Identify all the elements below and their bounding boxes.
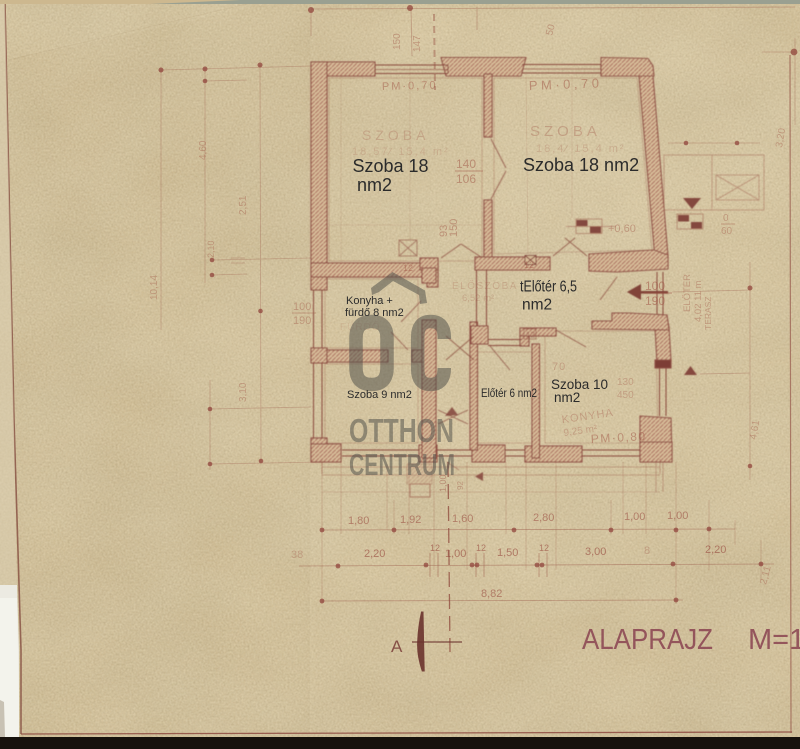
- svg-text:1,00: 1,00: [445, 548, 466, 560]
- svg-text:1,60: 1,60: [452, 513, 473, 525]
- svg-text:2,10: 2,10: [206, 240, 216, 258]
- svg-text:450: 450: [617, 390, 634, 401]
- svg-text:0: 0: [723, 213, 729, 224]
- svg-text:150: 150: [392, 33, 403, 50]
- svg-text:3,10: 3,10: [238, 382, 249, 402]
- svg-text:Előtér 6 nm2: Előtér 6 nm2: [481, 388, 537, 400]
- svg-text:1,00: 1,00: [624, 511, 645, 523]
- svg-text:4,60: 4,60: [198, 140, 209, 160]
- svg-text:93: 93: [438, 225, 450, 237]
- svg-text:nm2: nm2: [554, 390, 580, 405]
- svg-text:130: 130: [617, 377, 634, 388]
- svg-text:SZOBA: SZOBA: [362, 127, 429, 143]
- svg-text:Konyha +: Konyha +: [346, 295, 393, 307]
- svg-text:1,92: 1,92: [400, 514, 421, 526]
- svg-text:ALAPRAJZ: ALAPRAJZ: [582, 624, 713, 656]
- svg-text:70: 70: [552, 361, 566, 373]
- svg-text:190: 190: [645, 294, 665, 308]
- svg-text:Szoba 9 nm2: Szoba 9 nm2: [347, 389, 412, 401]
- svg-text:1,80: 1,80: [348, 515, 369, 527]
- svg-text:M=1: M=1: [748, 624, 800, 656]
- svg-text:fürdő 8 nm2: fürdő 8 nm2: [345, 307, 404, 319]
- svg-text:12: 12: [539, 543, 549, 553]
- svg-text:12: 12: [524, 260, 534, 270]
- svg-text:38: 38: [291, 549, 303, 561]
- svg-text:147: 147: [412, 35, 423, 52]
- svg-text:12: 12: [430, 543, 440, 553]
- svg-text:PM·0,80: PM·0,80: [590, 429, 647, 446]
- svg-text:10,14: 10,14: [149, 275, 160, 300]
- svg-text:PM·0,70: PM·0,70: [529, 75, 603, 93]
- svg-text:nm2: nm2: [357, 175, 392, 195]
- svg-text:2,20: 2,20: [364, 548, 385, 560]
- svg-text:2,80: 2,80: [533, 512, 554, 524]
- svg-text:CENTRUM: CENTRUM: [349, 447, 455, 482]
- svg-text:2,20: 2,20: [705, 544, 726, 556]
- svg-text:tElőtér 6,5: tElőtér 6,5: [520, 279, 577, 296]
- svg-text:12: 12: [476, 543, 486, 553]
- svg-text:TERASZ: TERASZ: [703, 296, 713, 330]
- svg-text:190: 190: [293, 315, 311, 327]
- svg-text:3,00: 3,00: [585, 546, 606, 558]
- svg-text:100: 100: [645, 279, 665, 293]
- svg-text:OTTHON: OTTHON: [349, 412, 454, 449]
- svg-text:18,4⁄ 15,4 m²: 18,4⁄ 15,4 m²: [536, 143, 626, 155]
- svg-text:12: 12: [526, 331, 535, 340]
- svg-text:92: 92: [456, 481, 465, 490]
- svg-text:A: A: [391, 637, 403, 656]
- svg-text:PM·0,70: PM·0,70: [382, 80, 438, 93]
- svg-text:106: 106: [456, 172, 476, 186]
- svg-text:2,51: 2,51: [238, 195, 249, 215]
- svg-text:100: 100: [293, 301, 311, 313]
- svg-text:8: 8: [644, 545, 650, 557]
- svg-text:SZOBA: SZOBA: [530, 123, 601, 140]
- svg-text:Szoba 18: Szoba 18: [353, 156, 429, 176]
- svg-text:6,52 m²: 6,52 m²: [462, 293, 494, 304]
- svg-text:ELŐSZOBA: ELŐSZOBA: [452, 278, 518, 292]
- svg-text:140: 140: [456, 157, 476, 171]
- svg-text:ELŐTER: ELŐTER: [682, 274, 693, 312]
- svg-text:1,00: 1,00: [667, 510, 688, 522]
- svg-text:60: 60: [721, 226, 733, 237]
- svg-text:8,82: 8,82: [481, 588, 502, 600]
- svg-text:nm2: nm2: [522, 297, 552, 314]
- svg-text:+0,60: +0,60: [608, 223, 636, 235]
- svg-text:Szoba 18 nm2: Szoba 18 nm2: [523, 155, 639, 175]
- svg-text:1,50: 1,50: [497, 547, 518, 559]
- svg-text:12: 12: [403, 263, 413, 273]
